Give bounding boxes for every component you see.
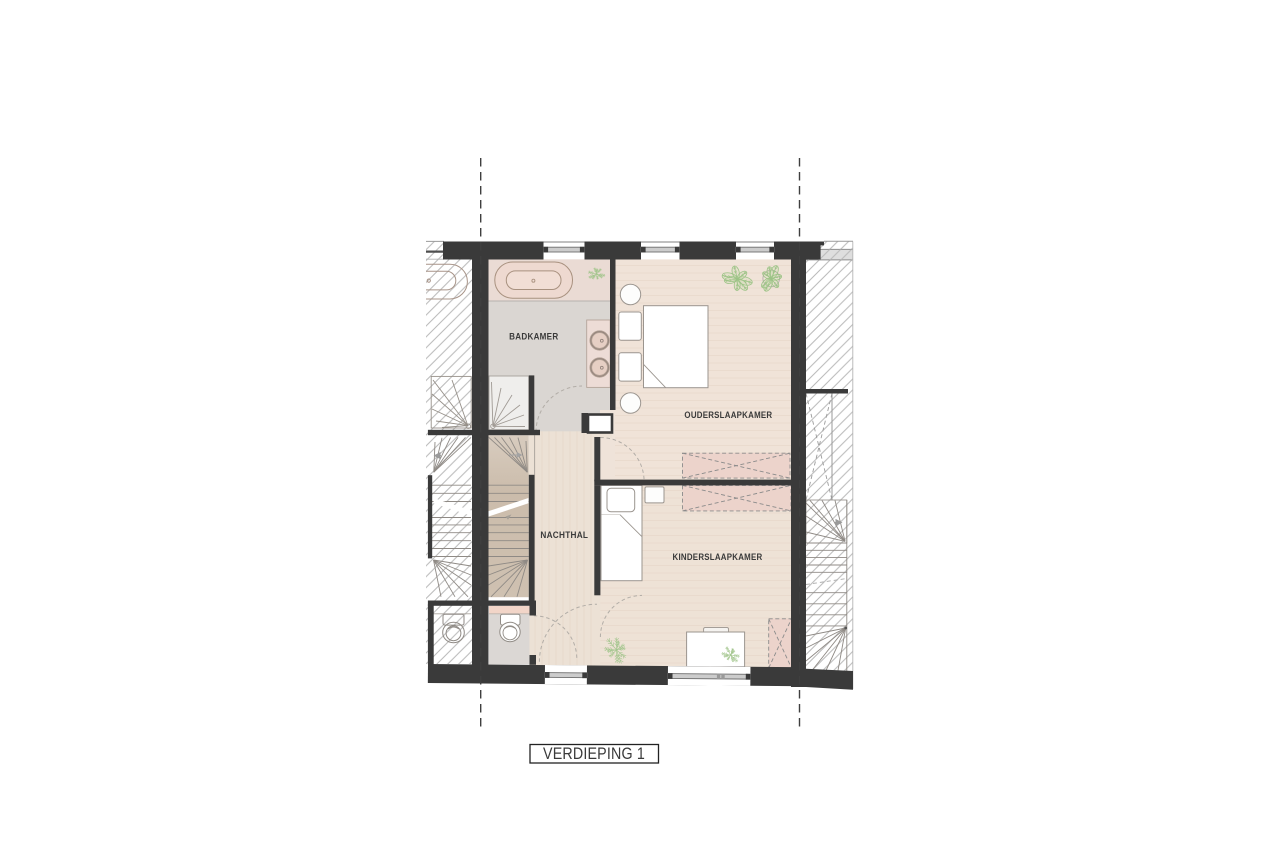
svg-text:VERDIEPING 1: VERDIEPING 1: [543, 745, 645, 763]
svg-text:KINDERSLAAPKAMER: KINDERSLAAPKAMER: [673, 551, 763, 562]
svg-text:BADKAMER: BADKAMER: [509, 331, 559, 342]
svg-text:NACHTHAL: NACHTHAL: [540, 529, 588, 540]
svg-text:OUDERSLAAPKAMER: OUDERSLAAPKAMER: [684, 409, 772, 420]
